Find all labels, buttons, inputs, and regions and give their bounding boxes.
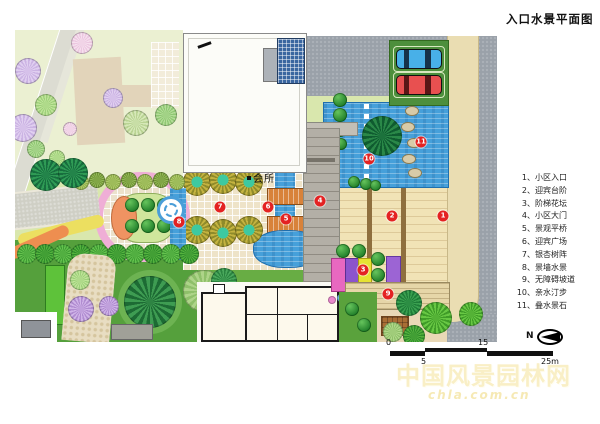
legend-num: 8 — [514, 262, 527, 275]
tree — [420, 302, 452, 334]
tree — [155, 104, 177, 126]
shrub — [345, 302, 359, 316]
legend-sep: 、 — [527, 185, 535, 198]
plan-marker: 8 — [174, 217, 185, 228]
stepping-stone — [408, 168, 422, 178]
legend: 1、小区入口 2、迎宾台阶 3、阶梯花坛 4、小区大门 5、景观平桥 6、迎宾广… — [514, 172, 598, 313]
ginkgo-tree — [235, 216, 263, 244]
flower-strip-pink — [331, 258, 346, 292]
fountain-ring — [164, 203, 178, 217]
plan-marker: 6 — [263, 202, 274, 213]
tree — [63, 122, 77, 136]
tree — [68, 296, 94, 322]
legend-num: 6 — [514, 236, 527, 249]
tree — [362, 116, 402, 156]
floorplan-wall — [277, 288, 278, 340]
hedge — [141, 198, 155, 212]
legend-item: 4、小区大门 — [514, 210, 598, 223]
legend-item: 10、亲水汀步 — [514, 287, 598, 300]
legend-item: 2、迎宾台阶 — [514, 185, 598, 198]
legend-label: 银杏树阵 — [535, 249, 567, 262]
clubhouse-pool-tile — [277, 38, 305, 84]
shrub — [333, 93, 347, 107]
road — [477, 36, 497, 342]
watermark-text: 中国风景园林网 — [396, 356, 571, 391]
plan-marker: 11 — [416, 137, 427, 148]
tree — [161, 244, 181, 264]
tree — [403, 325, 425, 342]
site-plan: 会所 1 2 3 4 5 6 7 8 9 10 11 — [15, 30, 497, 342]
legend-num: 11 — [514, 300, 527, 313]
north-arrow-icon — [537, 329, 563, 345]
clubhouse-label: 会所 — [247, 170, 275, 185]
legend-item: 7、银杏树阵 — [514, 249, 598, 262]
label-square — [247, 176, 251, 180]
legend-item: 6、迎宾广场 — [514, 236, 598, 249]
tree — [17, 244, 37, 264]
legend-item: 8、景墙水景 — [514, 262, 598, 275]
utility-block — [21, 320, 51, 338]
tree — [125, 244, 145, 264]
drawing-title: 入口水景平面图 — [506, 11, 598, 27]
north-label: N — [526, 331, 534, 341]
legend-sep: 、 — [527, 262, 535, 275]
plan-marker: 7 — [215, 202, 226, 213]
tree — [35, 94, 57, 116]
legend-num: 10 — [514, 287, 527, 300]
legend-sep: 、 — [527, 172, 535, 185]
legend-item: 1、小区入口 — [514, 172, 598, 185]
ginkgo-tree — [183, 216, 211, 244]
plan-marker: 10 — [364, 154, 375, 165]
shrub — [348, 176, 360, 188]
tree — [99, 296, 119, 316]
floorplan-door — [213, 284, 225, 294]
legend-label: 叠水景石 — [535, 300, 567, 313]
legend-item: 11、叠水景石 — [514, 300, 598, 313]
shrub — [333, 108, 347, 122]
stepping-stone — [401, 122, 415, 132]
legend-label: 景观平桥 — [535, 223, 567, 236]
plan-marker: 3 — [358, 265, 369, 276]
legend-num: 2 — [514, 185, 527, 198]
legend-sep: 、 — [527, 210, 535, 223]
legend-item: 5、景观平桥 — [514, 223, 598, 236]
tree — [15, 58, 41, 84]
tree — [153, 172, 169, 188]
tree — [35, 244, 55, 264]
legend-sep: 、 — [527, 223, 535, 236]
north-needle — [541, 332, 560, 342]
plan-marker: 9 — [383, 289, 394, 300]
plan-marker: 4 — [315, 196, 326, 207]
legend-sep: 、 — [527, 287, 535, 300]
legend-label: 小区大门 — [535, 210, 567, 223]
legend-label: 迎宾台阶 — [535, 185, 567, 198]
flower-bed-shrub — [352, 244, 366, 258]
shrub — [370, 180, 381, 191]
flower-bed-shrub — [371, 268, 385, 282]
legend-label: 无障碍坡道 — [535, 274, 575, 287]
tree — [70, 270, 90, 290]
clubhouse-label-text: 会所 — [253, 174, 275, 185]
utility-block — [111, 324, 153, 340]
legend-sep: 、 — [527, 198, 535, 211]
checker-plaza — [151, 42, 179, 108]
hedge — [125, 198, 139, 212]
legend-num: 9 — [514, 274, 527, 287]
legend-num: 1 — [514, 172, 527, 185]
floorplan-wall — [307, 314, 308, 340]
tree — [27, 140, 45, 158]
tree — [71, 32, 93, 54]
gate-wall — [305, 158, 335, 162]
tree — [137, 174, 153, 190]
legend-label: 亲水汀步 — [535, 287, 567, 300]
tree — [169, 174, 185, 190]
shrub — [357, 318, 371, 332]
legend-num: 4 — [514, 210, 527, 223]
ginkgo-tree — [209, 219, 237, 247]
tree — [143, 244, 163, 264]
floorplan-wall — [247, 314, 337, 315]
legend-label: 阶梯花坛 — [535, 198, 567, 211]
legend-sep: 、 — [527, 236, 535, 249]
flower-bed-shrub — [371, 252, 385, 266]
plan-marker: 2 — [387, 211, 398, 222]
page: 入口水景平面图 — [0, 0, 600, 424]
tree — [58, 158, 88, 188]
legend-item: 9、无障碍坡道 — [514, 274, 598, 287]
legend-num: 7 — [514, 249, 527, 262]
scale-label-15: 15 — [478, 338, 488, 347]
legend-label: 小区入口 — [535, 172, 567, 185]
legend-item: 3、阶梯花坛 — [514, 198, 598, 211]
car-blue — [396, 49, 442, 69]
flower-bed-shrub — [336, 244, 350, 258]
stepping-stone — [402, 154, 416, 164]
car-red — [396, 75, 442, 95]
tree — [123, 110, 149, 136]
legend-num: 3 — [514, 198, 527, 211]
scale-bar-segment — [425, 348, 487, 352]
bridge — [267, 188, 305, 205]
legend-num: 5 — [514, 223, 527, 236]
tree — [124, 276, 176, 328]
legend-sep: 、 — [527, 249, 535, 262]
watermark-url: chla.com.cn — [428, 388, 531, 402]
legend-sep: 、 — [527, 274, 535, 287]
legend-label: 迎宾广场 — [535, 236, 567, 249]
plan-marker: 5 — [281, 214, 292, 225]
tree — [396, 290, 422, 316]
hedge — [141, 219, 155, 233]
sidewalk — [447, 36, 479, 322]
stepping-stone — [405, 106, 419, 116]
legend-sep: 、 — [527, 300, 535, 313]
hedge — [125, 219, 139, 233]
lawn — [339, 292, 377, 342]
tree — [179, 244, 199, 264]
legend-label: 景墙水景 — [535, 262, 567, 275]
plan-marker: 1 — [438, 211, 449, 222]
tree — [459, 302, 483, 326]
scale-label-0: 0 — [386, 338, 391, 347]
tree — [121, 172, 137, 188]
flower-dot — [328, 296, 336, 304]
tree — [89, 172, 105, 188]
tree — [103, 88, 123, 108]
tree — [105, 174, 121, 190]
